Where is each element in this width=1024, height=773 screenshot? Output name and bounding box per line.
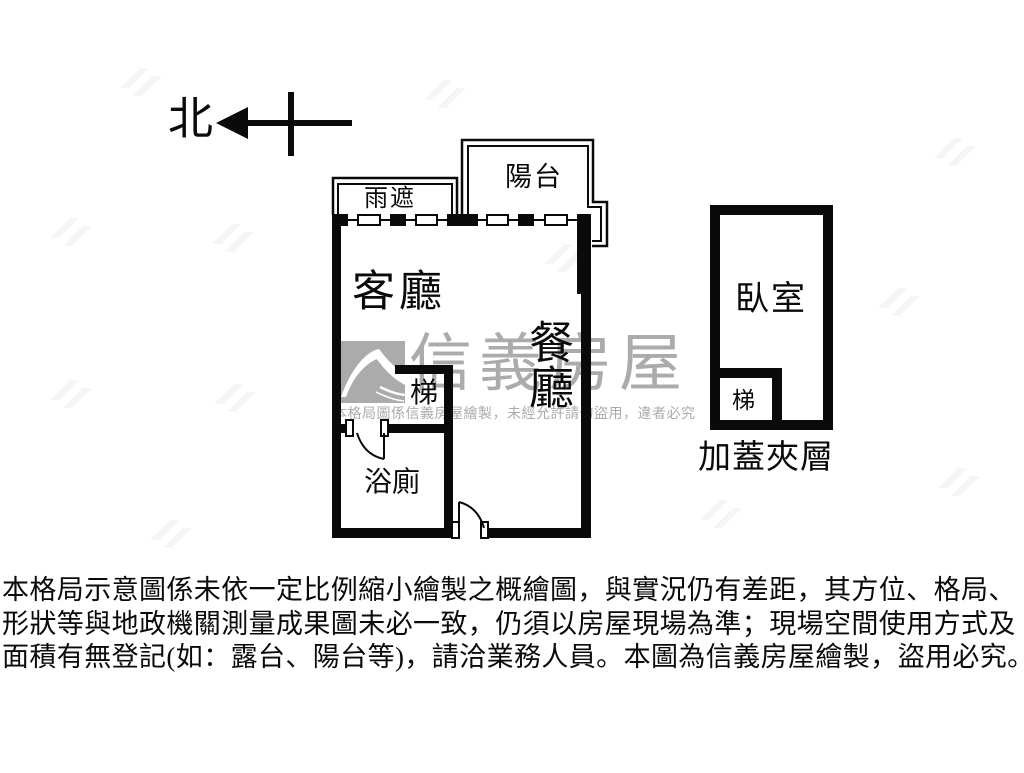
wall-jog-notch xyxy=(577,294,581,302)
living-room-label: 客廳 xyxy=(352,271,446,314)
bedroom-label: 臥室 xyxy=(735,283,807,317)
north-label: 北 xyxy=(168,97,213,142)
bathroom-label: 浴廁 xyxy=(364,469,420,497)
balcony-label: 陽台 xyxy=(505,164,563,191)
main-stairs-label: 梯 xyxy=(410,380,438,408)
floor-plan-page: { "colors": {"ink": "#0a0a0a", "watermar… xyxy=(0,0,1024,768)
annex-stairs-label: 梯 xyxy=(732,389,755,412)
canopy-label: 雨遮 xyxy=(364,187,416,211)
entrance-door xyxy=(452,502,488,538)
north-arrow-icon xyxy=(216,92,352,156)
bathroom-door xyxy=(346,420,388,459)
floor-plan-drawing xyxy=(0,0,1024,768)
dining-room-label: 餐廳 xyxy=(524,319,569,409)
annex-caption: 加蓋夾層 xyxy=(698,442,834,475)
